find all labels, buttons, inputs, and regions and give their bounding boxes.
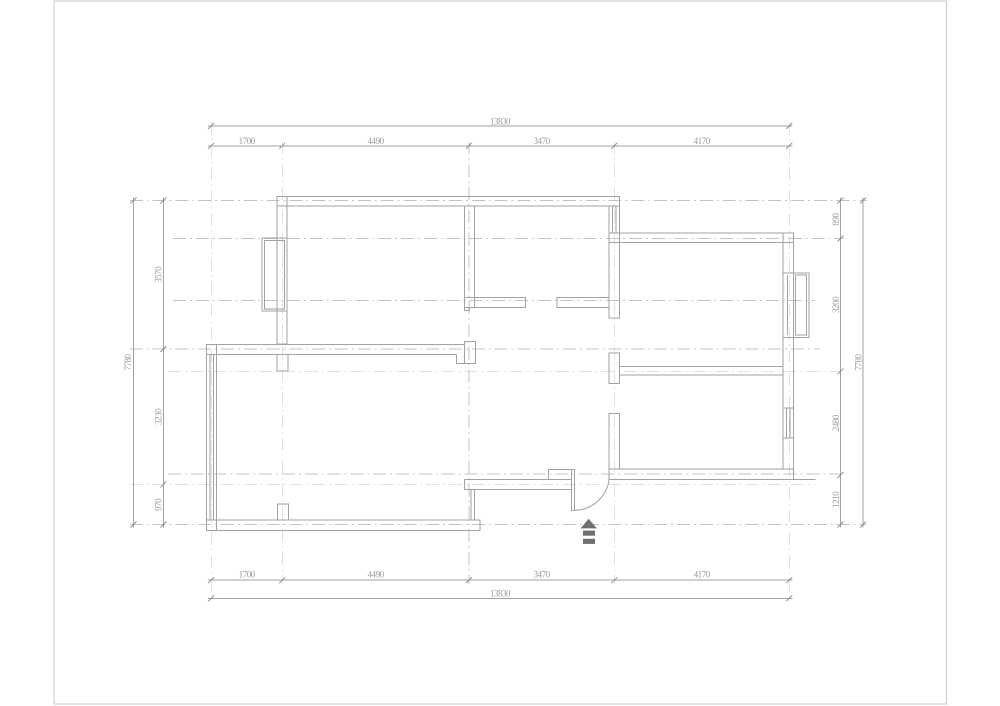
svg-text:1210: 1210: [831, 491, 841, 508]
svg-text:3570: 3570: [153, 266, 163, 283]
svg-text:1700: 1700: [239, 136, 256, 146]
svg-text:890: 890: [831, 212, 841, 225]
svg-text:13830: 13830: [490, 588, 511, 598]
svg-text:4170: 4170: [694, 570, 711, 580]
svg-text:4490: 4490: [367, 570, 384, 580]
svg-text:4490: 4490: [367, 136, 384, 146]
svg-text:4170: 4170: [694, 136, 711, 146]
svg-text:3200: 3200: [831, 296, 841, 313]
svg-text:3230: 3230: [153, 408, 163, 425]
svg-text:2480: 2480: [831, 414, 841, 431]
svg-text:1700: 1700: [239, 570, 256, 580]
svg-text:970: 970: [153, 498, 163, 511]
svg-text:7780: 7780: [123, 353, 133, 370]
svg-text:3470: 3470: [533, 570, 550, 580]
svg-text:3470: 3470: [533, 136, 550, 146]
svg-text:7780: 7780: [854, 353, 864, 370]
svg-text:13830: 13830: [490, 116, 511, 126]
